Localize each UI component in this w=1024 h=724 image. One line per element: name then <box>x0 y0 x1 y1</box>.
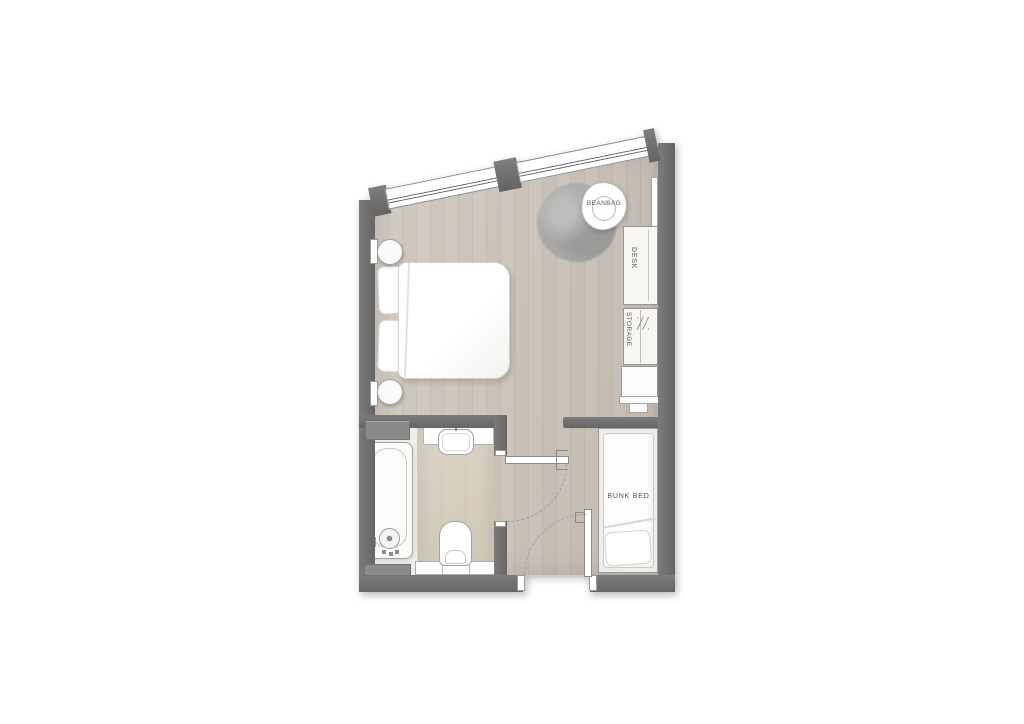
bathroom-niche-top <box>365 420 410 440</box>
sink-basin <box>438 429 474 455</box>
bath-tap-dots <box>382 550 386 554</box>
wardrobe-unit <box>621 366 658 397</box>
entry-door-jamb-right <box>589 575 597 591</box>
storage-label: STORAGE <box>625 312 632 362</box>
bathroom-niche-bottom <box>364 564 411 576</box>
right-wall <box>658 143 675 591</box>
desk-label: DESK <box>630 247 637 291</box>
shower-head <box>379 528 400 549</box>
wall-ledge <box>651 177 658 227</box>
desk <box>623 226 658 305</box>
bedside-lamp-top <box>377 239 403 265</box>
bathroom-right-wall-lower <box>494 521 507 575</box>
double-bed-duvet <box>398 262 510 379</box>
studio-floor-plan: BEANBAG DESK STORAGE BUNK BED <box>0 0 1024 724</box>
bunk-bed-label: BUNK BED <box>600 493 657 500</box>
storage-hatch-marks <box>637 317 649 330</box>
wardrobe-tab <box>629 403 648 413</box>
toilet-cistern <box>445 550 466 564</box>
bottom-wall-left <box>359 575 523 592</box>
bath-door-jamb-bottom <box>495 521 506 527</box>
bunk-divider-wall <box>563 417 658 428</box>
bunk-pillow <box>604 529 652 566</box>
desk-inner-line <box>648 230 649 301</box>
bottom-wall-right <box>590 575 675 592</box>
beanbag-label: BEANBAG <box>578 200 630 207</box>
entry-door-jamb-left <box>517 575 525 591</box>
bedside-lamp-bottom <box>377 379 403 405</box>
floor-plan-page: BEANBAG DESK STORAGE BUNK BED <box>0 0 1024 724</box>
